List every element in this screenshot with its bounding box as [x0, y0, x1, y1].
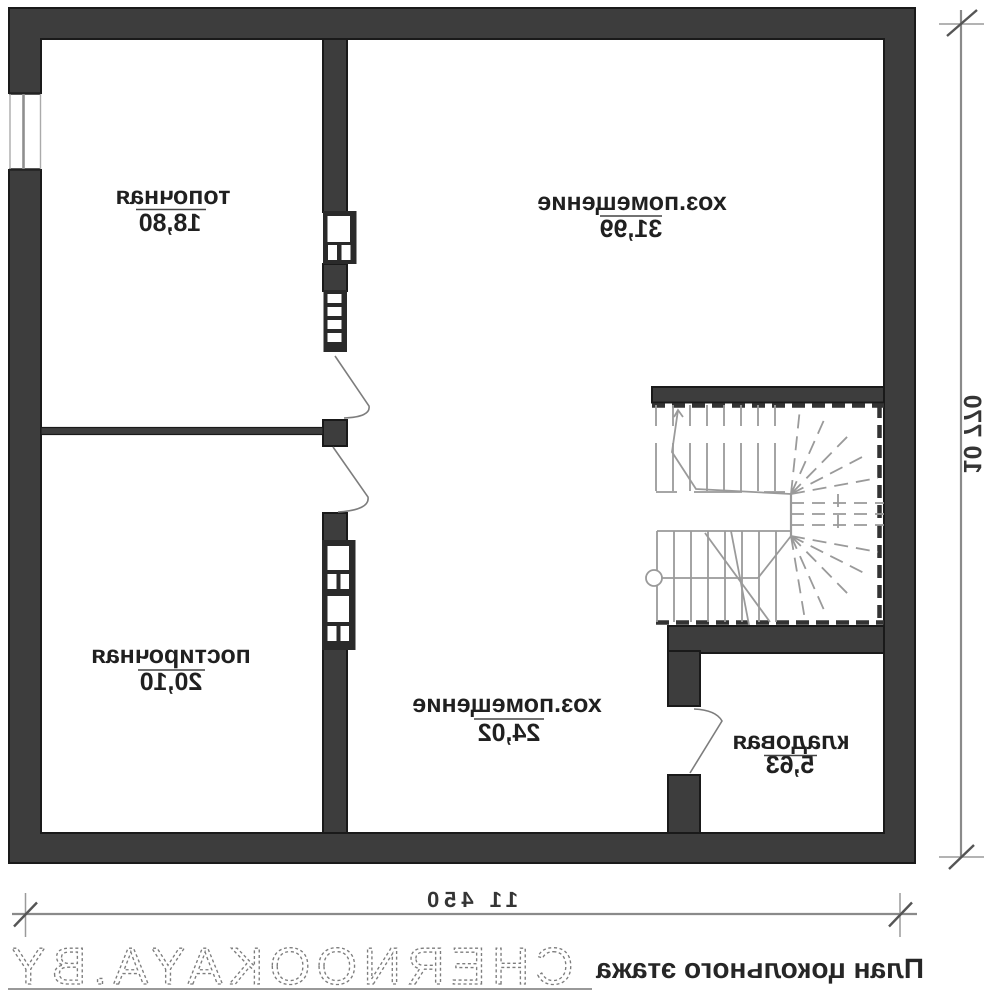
svg-text:постирочная: постирочная [91, 641, 251, 669]
svg-text:хоз.помещение: хоз.помещение [412, 690, 602, 718]
svg-text:31,99: 31,99 [600, 215, 663, 243]
svg-text:хоз.помещение: хоз.помещение [537, 188, 727, 216]
svg-text:20,10: 20,10 [140, 668, 203, 696]
svg-text:11 450: 11 450 [422, 887, 518, 912]
svg-text:18,80: 18,80 [139, 209, 202, 237]
svg-text:24,02: 24,02 [478, 719, 541, 747]
svg-text:CHERNOOKAYA.BY: CHERNOOKAYA.BY [5, 938, 574, 996]
svg-text:План цокольного этажа: План цокольного этажа [596, 953, 924, 984]
svg-text:топочная: топочная [115, 182, 230, 210]
svg-text:10 770: 10 770 [958, 394, 986, 473]
